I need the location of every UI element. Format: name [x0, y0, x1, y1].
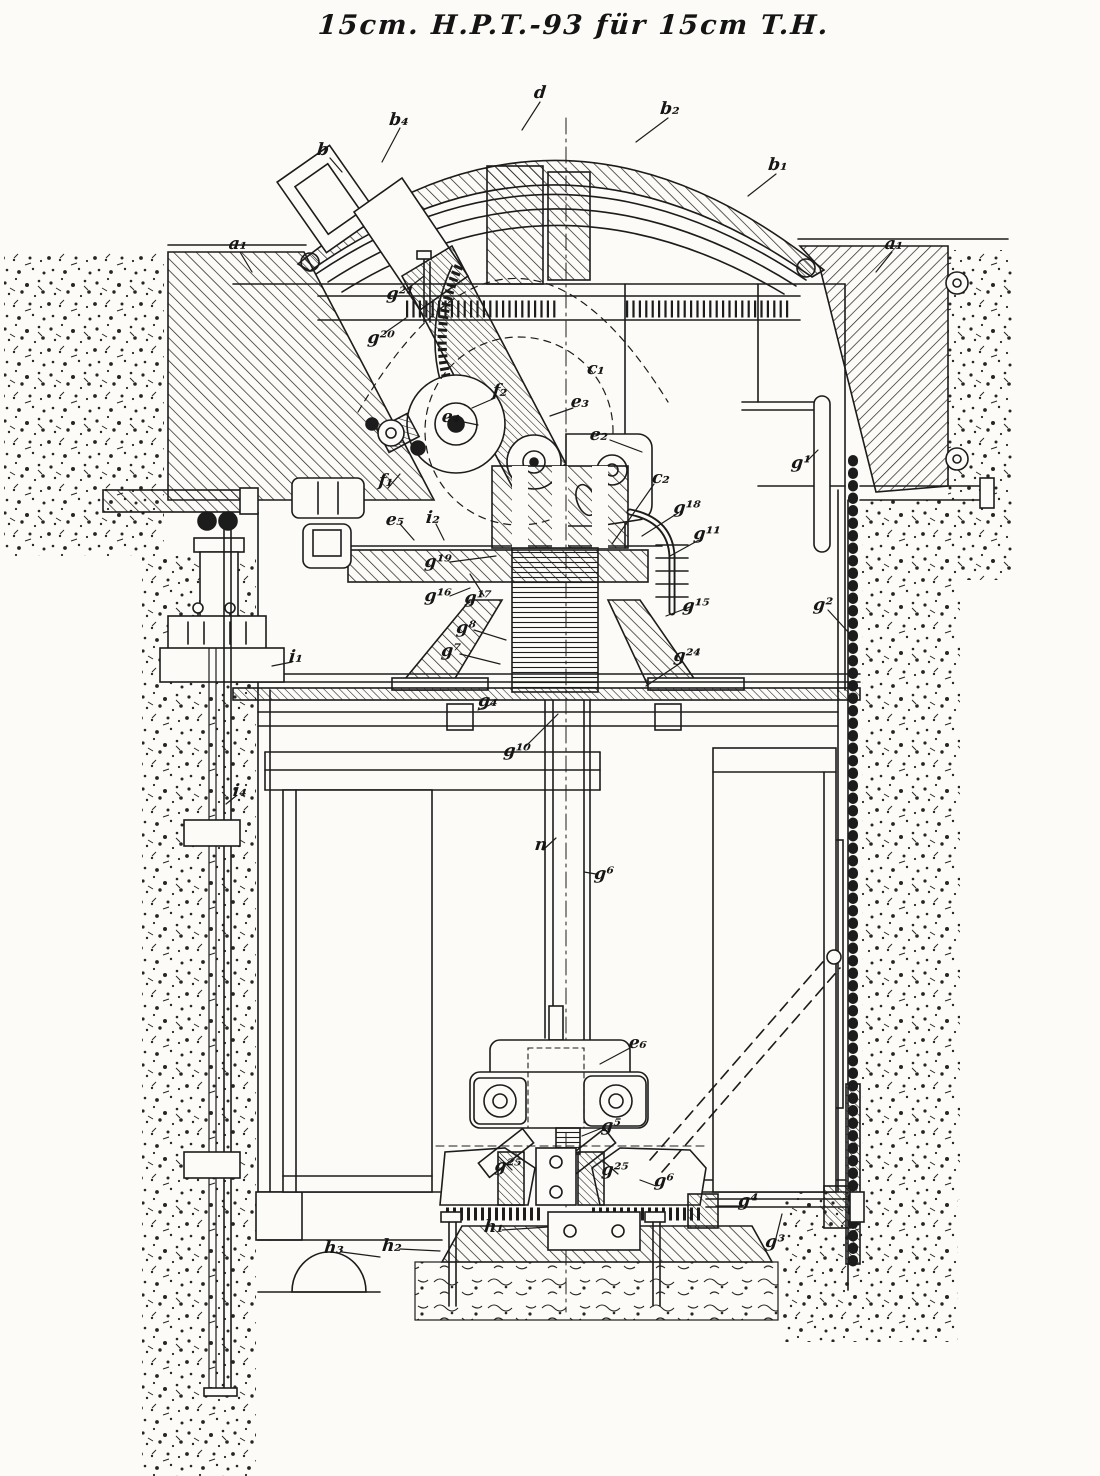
crosshead — [470, 1040, 648, 1154]
drawing-title: 15cm. H.P.T.-93 für 15cm T.H. — [317, 10, 819, 41]
turret-section-drawing — [0, 0, 1100, 1476]
left-platform-ledge — [103, 488, 258, 514]
rubble-bed — [415, 1262, 778, 1320]
counterweight-tackle — [194, 512, 244, 633]
drawing-sheet: 15cm. H.P.T.-93 für 15cm T.H. db₄b₂bb₁a₁… — [0, 0, 1100, 1476]
right-hoist-cylinder — [713, 748, 836, 1192]
